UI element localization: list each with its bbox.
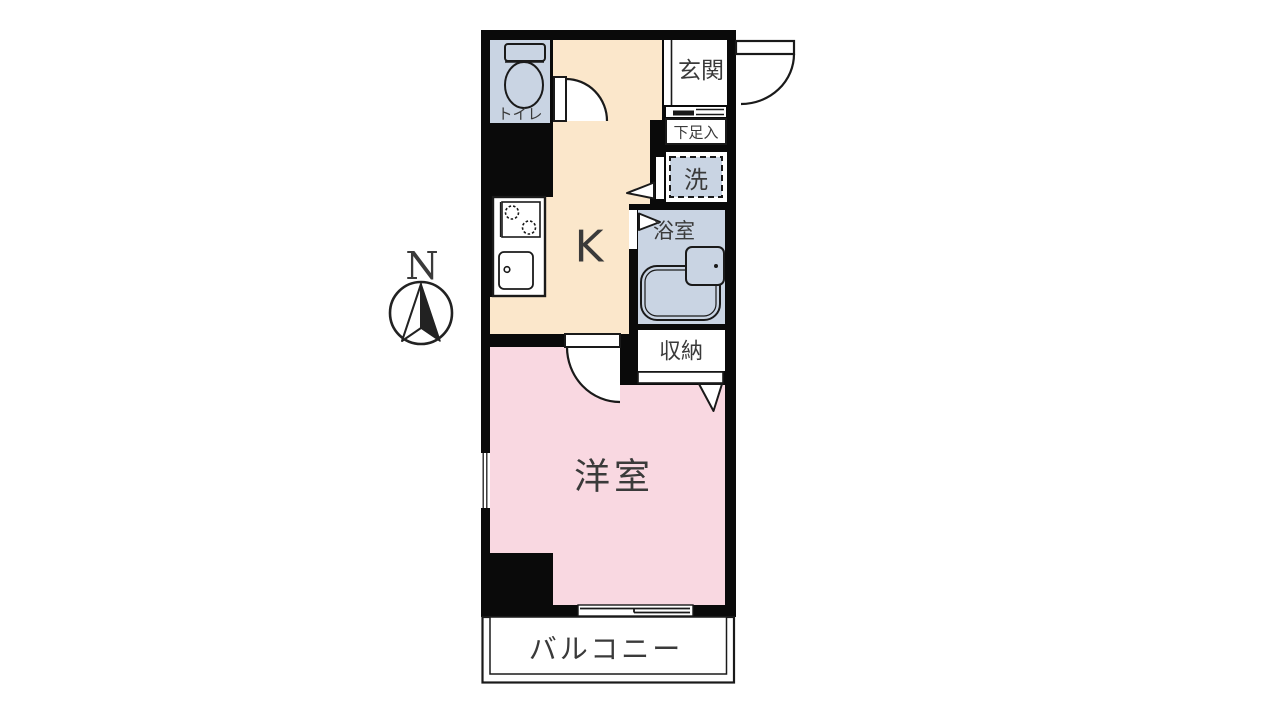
floor-plan: N バルコニー トイレ K [0,0,1280,720]
bathroom: 浴室 [629,210,725,324]
balcony: バルコニー [483,617,735,683]
kitchen-counter [493,197,545,296]
compass-needle-dark-half-icon [421,284,440,341]
storage-room: 収納 [638,330,725,371]
room-door-leaf [565,334,620,347]
stove-icon [501,202,541,237]
western-room-label: 洋室 [574,457,654,498]
bathroom-label: 浴室 [653,219,695,243]
toilet-icon [505,44,545,108]
storage-door-panel [638,372,723,383]
entrance-door-leaf [736,41,794,54]
toilet-room: トイレ [490,40,550,123]
balcony-label: バルコニー [529,633,683,666]
shoe-cabinet: 下足入 [666,119,726,144]
compass-needle-icon [402,284,421,341]
sink-icon [499,252,533,289]
shoe-cabinet-label: 下足入 [673,124,718,142]
window-left [481,453,490,508]
kitchen-label: K [575,222,605,273]
bath-sink-icon [686,247,724,285]
laundry-label: 洗 [684,166,708,194]
storage-label: 収納 [659,340,703,365]
bathroom-door-jamb [629,210,637,249]
entrance-step [666,107,726,117]
toilet-door-leaf [554,77,566,121]
laundry-door-jamb [656,157,664,199]
toilet-label: トイレ [497,105,542,123]
entrance-label: 玄関 [678,58,724,84]
sliding-door-balcony [578,605,693,616]
compass: N [390,244,452,344]
floor-plan-svg: N バルコニー トイレ K [0,0,1280,720]
